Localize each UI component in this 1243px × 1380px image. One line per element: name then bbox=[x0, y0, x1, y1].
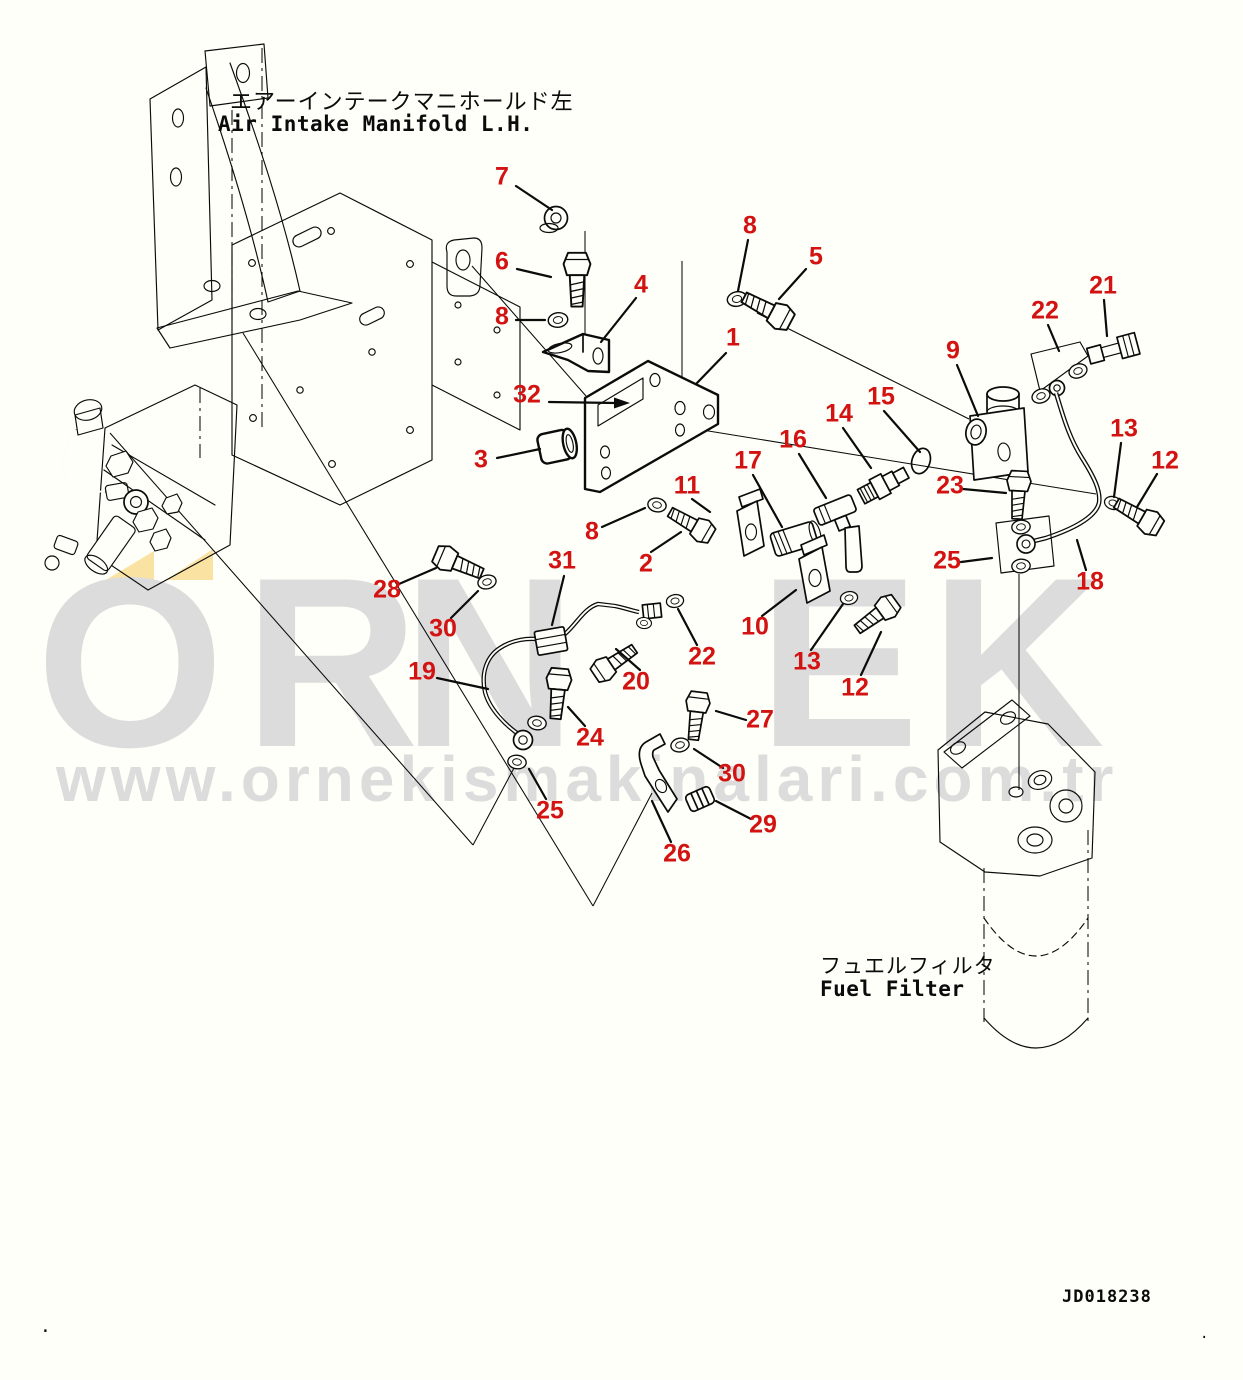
callout-12: 12 bbox=[1151, 446, 1179, 475]
callout-29: 29 bbox=[749, 810, 777, 839]
stray-dot-left: . bbox=[40, 1316, 51, 1337]
callout-25: 25 bbox=[536, 796, 564, 825]
callout-20: 20 bbox=[622, 667, 650, 696]
callout-3: 3 bbox=[474, 445, 488, 474]
callout-5: 5 bbox=[809, 242, 823, 271]
callout-26: 26 bbox=[663, 839, 691, 868]
callout-30: 30 bbox=[718, 759, 746, 788]
parts-diagram-page: www.ornekismakinalari.com.tr ORNEK bbox=[0, 0, 1243, 1380]
callout-11: 11 bbox=[674, 471, 700, 500]
callout-9: 9 bbox=[946, 336, 960, 365]
callout-28: 28 bbox=[373, 575, 401, 604]
callout-24: 24 bbox=[576, 723, 604, 752]
callout-16: 16 bbox=[779, 425, 807, 454]
air-intake-label-en: Air Intake Manifold L.H. bbox=[218, 112, 533, 136]
callout-15: 15 bbox=[867, 382, 895, 411]
stray-dot-right: . bbox=[1200, 1326, 1208, 1342]
drawing-number: JD018238 bbox=[1062, 1287, 1152, 1307]
fuel-filter-label-jp: フュエルフィルタ bbox=[820, 950, 996, 980]
callout-14: 14 bbox=[825, 399, 853, 428]
callout-13: 13 bbox=[1110, 414, 1138, 443]
callout-18: 18 bbox=[1076, 567, 1104, 596]
fuel-filter-label-en: Fuel Filter bbox=[820, 977, 965, 1001]
callout-17: 17 bbox=[734, 446, 762, 475]
callout-22: 22 bbox=[1031, 296, 1059, 325]
callout-layer: 1234567888910111212131314151617181920212… bbox=[0, 0, 1243, 1380]
callout-2: 2 bbox=[639, 549, 653, 578]
callout-23: 23 bbox=[936, 471, 964, 500]
callout-8: 8 bbox=[495, 302, 509, 331]
callout-32: 32 bbox=[513, 380, 541, 409]
callout-8: 8 bbox=[743, 211, 757, 240]
callout-22: 22 bbox=[688, 642, 716, 671]
callout-7: 7 bbox=[495, 162, 509, 191]
callout-31: 31 bbox=[548, 546, 576, 575]
callout-13: 13 bbox=[793, 647, 821, 676]
callout-21: 21 bbox=[1089, 271, 1117, 300]
callout-1: 1 bbox=[726, 323, 740, 352]
callout-25: 25 bbox=[933, 546, 961, 575]
callout-19: 19 bbox=[408, 657, 436, 686]
callout-8: 8 bbox=[585, 517, 599, 546]
callout-27: 27 bbox=[746, 705, 774, 734]
callout-12: 12 bbox=[841, 673, 869, 702]
callout-10: 10 bbox=[741, 612, 769, 641]
callout-30: 30 bbox=[429, 614, 457, 643]
callout-4: 4 bbox=[634, 270, 648, 299]
callout-6: 6 bbox=[495, 247, 509, 276]
